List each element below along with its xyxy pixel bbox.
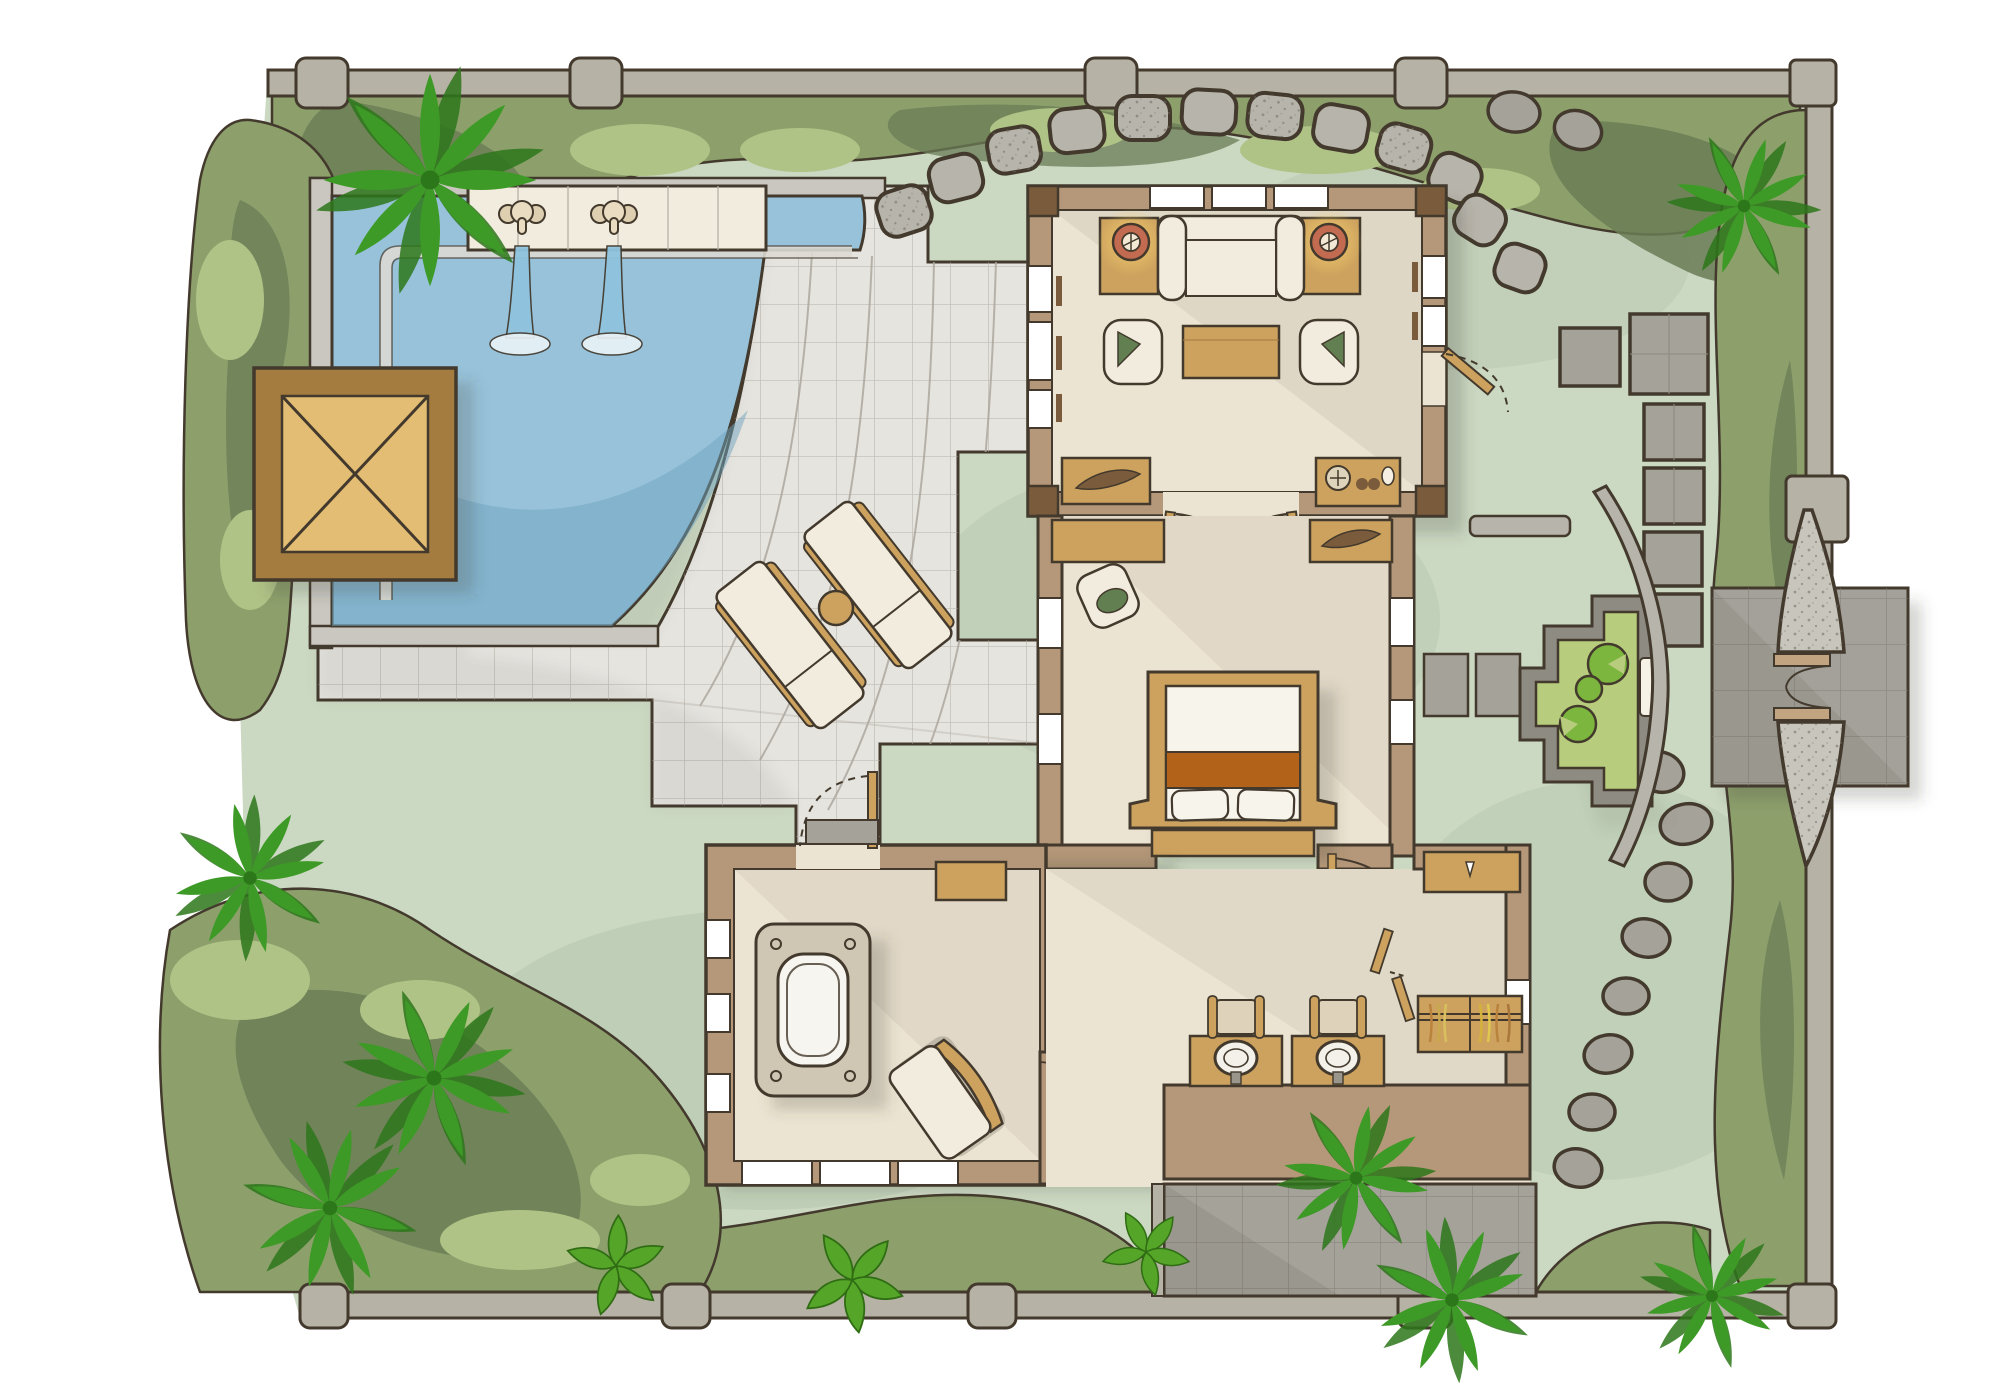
pillow (1237, 789, 1294, 821)
garden-paver (1476, 654, 1520, 716)
dressing-room (1046, 845, 1530, 1187)
vanity-counter (1190, 1036, 1282, 1086)
sofa (1158, 216, 1304, 300)
floor-plan-canvas (0, 0, 1993, 1384)
bath-bench (936, 862, 1006, 900)
wall-bottom (300, 1292, 1832, 1318)
entry-pad (806, 820, 878, 844)
bedroom-wall-east (1390, 516, 1414, 856)
pool-curb-bottom (310, 626, 658, 646)
gate-door-leaf (1774, 654, 1830, 666)
bathtub (778, 954, 848, 1066)
double-bed (1130, 672, 1336, 860)
door-opening (1163, 492, 1299, 516)
media-console (1316, 458, 1400, 506)
stone-bench (1470, 516, 1570, 536)
sink-icon (1215, 1041, 1257, 1075)
vanity-stool (1310, 996, 1366, 1038)
garden-paver (1424, 654, 1468, 716)
armchair (1104, 320, 1162, 384)
bedroom-desk (1052, 520, 1164, 562)
wall-top (268, 70, 1818, 96)
bathtub-platform (756, 924, 888, 1110)
bedroom-wall-west (1038, 516, 1062, 868)
pillow (1171, 789, 1228, 821)
vanity-stool (1208, 996, 1264, 1038)
villa-floor-plan (0, 0, 1993, 1384)
cup-icon (1382, 467, 1394, 485)
writing-desk (1062, 458, 1150, 504)
dressing-console (1424, 852, 1520, 892)
coffee-table (1183, 326, 1279, 378)
gate-door-leaf (1774, 708, 1830, 720)
sink-icon (1317, 1041, 1359, 1075)
living-pavilion (1028, 186, 1508, 564)
headboard-ledge (1152, 830, 1314, 856)
wardrobe (1418, 996, 1522, 1052)
table-lamp-icon (1113, 224, 1149, 260)
sofa-group (1097, 208, 1363, 300)
round-side-table (819, 591, 853, 625)
table-lamp-icon (1311, 224, 1347, 260)
vanity-counter (1292, 1036, 1384, 1086)
pool-pavilion (254, 368, 474, 594)
bed-runner (1166, 752, 1300, 788)
bedroom (1038, 516, 1414, 916)
console-desk (1310, 520, 1392, 562)
armchair (1300, 320, 1358, 384)
